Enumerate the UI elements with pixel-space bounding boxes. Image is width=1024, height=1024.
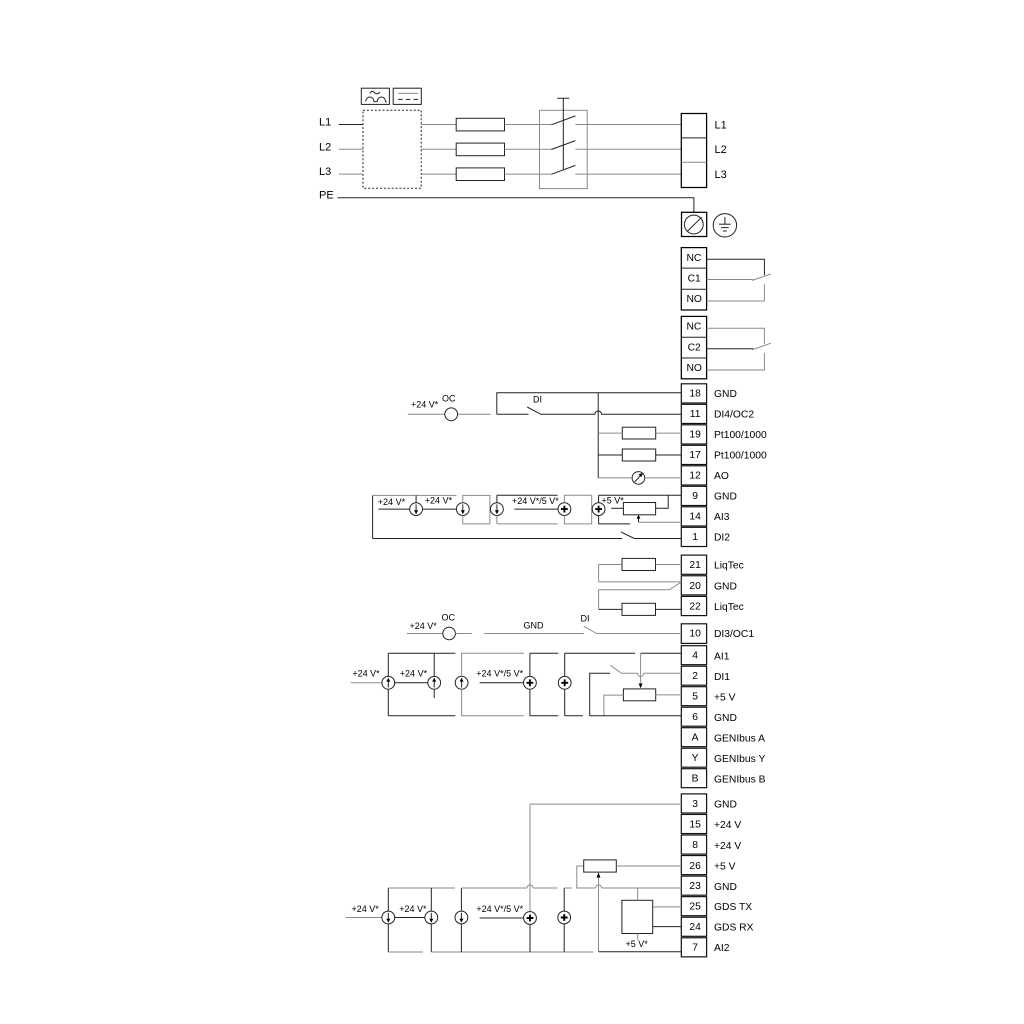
svg-text:GND: GND xyxy=(714,491,737,502)
svg-text:AI2: AI2 xyxy=(714,943,730,954)
svg-text:22: 22 xyxy=(689,601,701,612)
svg-text:GND: GND xyxy=(714,389,737,400)
svg-text:AI3: AI3 xyxy=(714,512,730,523)
svg-text:AO: AO xyxy=(714,471,729,482)
svg-text:DI: DI xyxy=(533,394,542,404)
svg-text:LiqTec: LiqTec xyxy=(714,561,744,572)
svg-text:DI3/OC1: DI3/OC1 xyxy=(714,629,754,640)
svg-text:DI2: DI2 xyxy=(714,532,730,543)
svg-text:+24 V: +24 V xyxy=(714,820,741,831)
svg-text:20: 20 xyxy=(689,581,701,592)
svg-text:12: 12 xyxy=(689,470,701,481)
svg-text:GENIbus Y: GENIbus Y xyxy=(714,754,765,765)
svg-text:6: 6 xyxy=(692,712,698,723)
svg-text:10: 10 xyxy=(689,629,701,640)
svg-text:+24 V*: +24 V* xyxy=(378,497,406,507)
svg-text:GDS RX: GDS RX xyxy=(714,923,754,934)
svg-text:+24 V*: +24 V* xyxy=(352,904,380,914)
svg-text:L1: L1 xyxy=(715,119,727,131)
svg-text:+24 V: +24 V xyxy=(714,841,741,852)
svg-text:17: 17 xyxy=(689,450,701,461)
svg-text:NO: NO xyxy=(687,294,702,305)
svg-text:GENIbus B: GENIbus B xyxy=(714,774,766,785)
svg-text:L3: L3 xyxy=(715,169,727,181)
svg-text:LiqTec: LiqTec xyxy=(714,602,744,613)
svg-text:Y: Y xyxy=(692,753,699,764)
svg-text:B: B xyxy=(692,774,699,785)
svg-text:Pt100/1000: Pt100/1000 xyxy=(714,450,767,461)
svg-text:14: 14 xyxy=(689,511,701,522)
svg-text:OC: OC xyxy=(442,393,456,403)
svg-text:1: 1 xyxy=(692,532,698,543)
svg-text:+24 V*/5 V*: +24 V*/5 V* xyxy=(476,904,523,914)
svg-text:L1: L1 xyxy=(319,117,331,129)
svg-text:OC: OC xyxy=(442,613,456,623)
svg-text:+24 V*/5 V*: +24 V*/5 V* xyxy=(512,496,559,506)
svg-text:+24 V*: +24 V* xyxy=(411,400,439,410)
svg-text:+24 V*: +24 V* xyxy=(399,904,427,914)
svg-text:3: 3 xyxy=(692,799,698,810)
svg-text:Pt100/1000: Pt100/1000 xyxy=(714,430,767,441)
svg-text:NO: NO xyxy=(687,363,702,374)
svg-text:4: 4 xyxy=(692,651,698,662)
svg-text:+24 V*: +24 V* xyxy=(425,495,453,505)
svg-text:GND: GND xyxy=(714,800,737,811)
svg-text:18: 18 xyxy=(689,388,701,399)
svg-text:L2: L2 xyxy=(319,141,331,153)
svg-text:8: 8 xyxy=(692,840,698,851)
svg-text:PE: PE xyxy=(319,190,334,202)
svg-text:9: 9 xyxy=(692,491,698,502)
svg-text:NC: NC xyxy=(687,322,702,333)
svg-text:C1: C1 xyxy=(688,274,701,285)
svg-text:+5 V: +5 V xyxy=(714,861,736,872)
svg-text:21: 21 xyxy=(689,560,701,571)
svg-text:19: 19 xyxy=(689,429,701,440)
svg-text:23: 23 xyxy=(689,881,701,892)
svg-text:DI1: DI1 xyxy=(714,672,730,683)
svg-text:GND: GND xyxy=(714,882,737,893)
svg-text:GND: GND xyxy=(714,581,737,592)
svg-text:2: 2 xyxy=(692,671,698,682)
svg-text:+5 V: +5 V xyxy=(714,692,736,703)
svg-text:C2: C2 xyxy=(688,342,701,353)
svg-text:AI1: AI1 xyxy=(714,651,730,662)
svg-text:L3: L3 xyxy=(319,166,331,178)
svg-text:GDS TX: GDS TX xyxy=(714,902,752,913)
svg-text:26: 26 xyxy=(689,861,701,872)
svg-text:A: A xyxy=(692,733,699,744)
svg-text:11: 11 xyxy=(690,409,701,420)
svg-text:+5 V*: +5 V* xyxy=(602,496,625,506)
svg-text:GND: GND xyxy=(714,713,737,724)
svg-text:15: 15 xyxy=(689,820,701,831)
svg-text:DI: DI xyxy=(581,614,590,624)
svg-text:DI4/OC2: DI4/OC2 xyxy=(714,409,754,420)
svg-text:7: 7 xyxy=(692,943,698,954)
svg-text:NC: NC xyxy=(687,253,702,264)
svg-text:+24 V*: +24 V* xyxy=(352,668,380,678)
svg-text:+24 V*/5 V*: +24 V*/5 V* xyxy=(476,668,523,678)
svg-text:L2: L2 xyxy=(715,144,727,156)
svg-text:+5 V*: +5 V* xyxy=(626,939,649,949)
svg-text:25: 25 xyxy=(689,902,701,913)
svg-text:+24 V*: +24 V* xyxy=(400,668,428,678)
svg-text:GENIbus A: GENIbus A xyxy=(714,733,765,744)
svg-text:5: 5 xyxy=(692,692,698,703)
svg-text:+24 V*: +24 V* xyxy=(410,621,438,631)
svg-text:GND: GND xyxy=(524,621,545,631)
svg-text:24: 24 xyxy=(689,922,701,933)
